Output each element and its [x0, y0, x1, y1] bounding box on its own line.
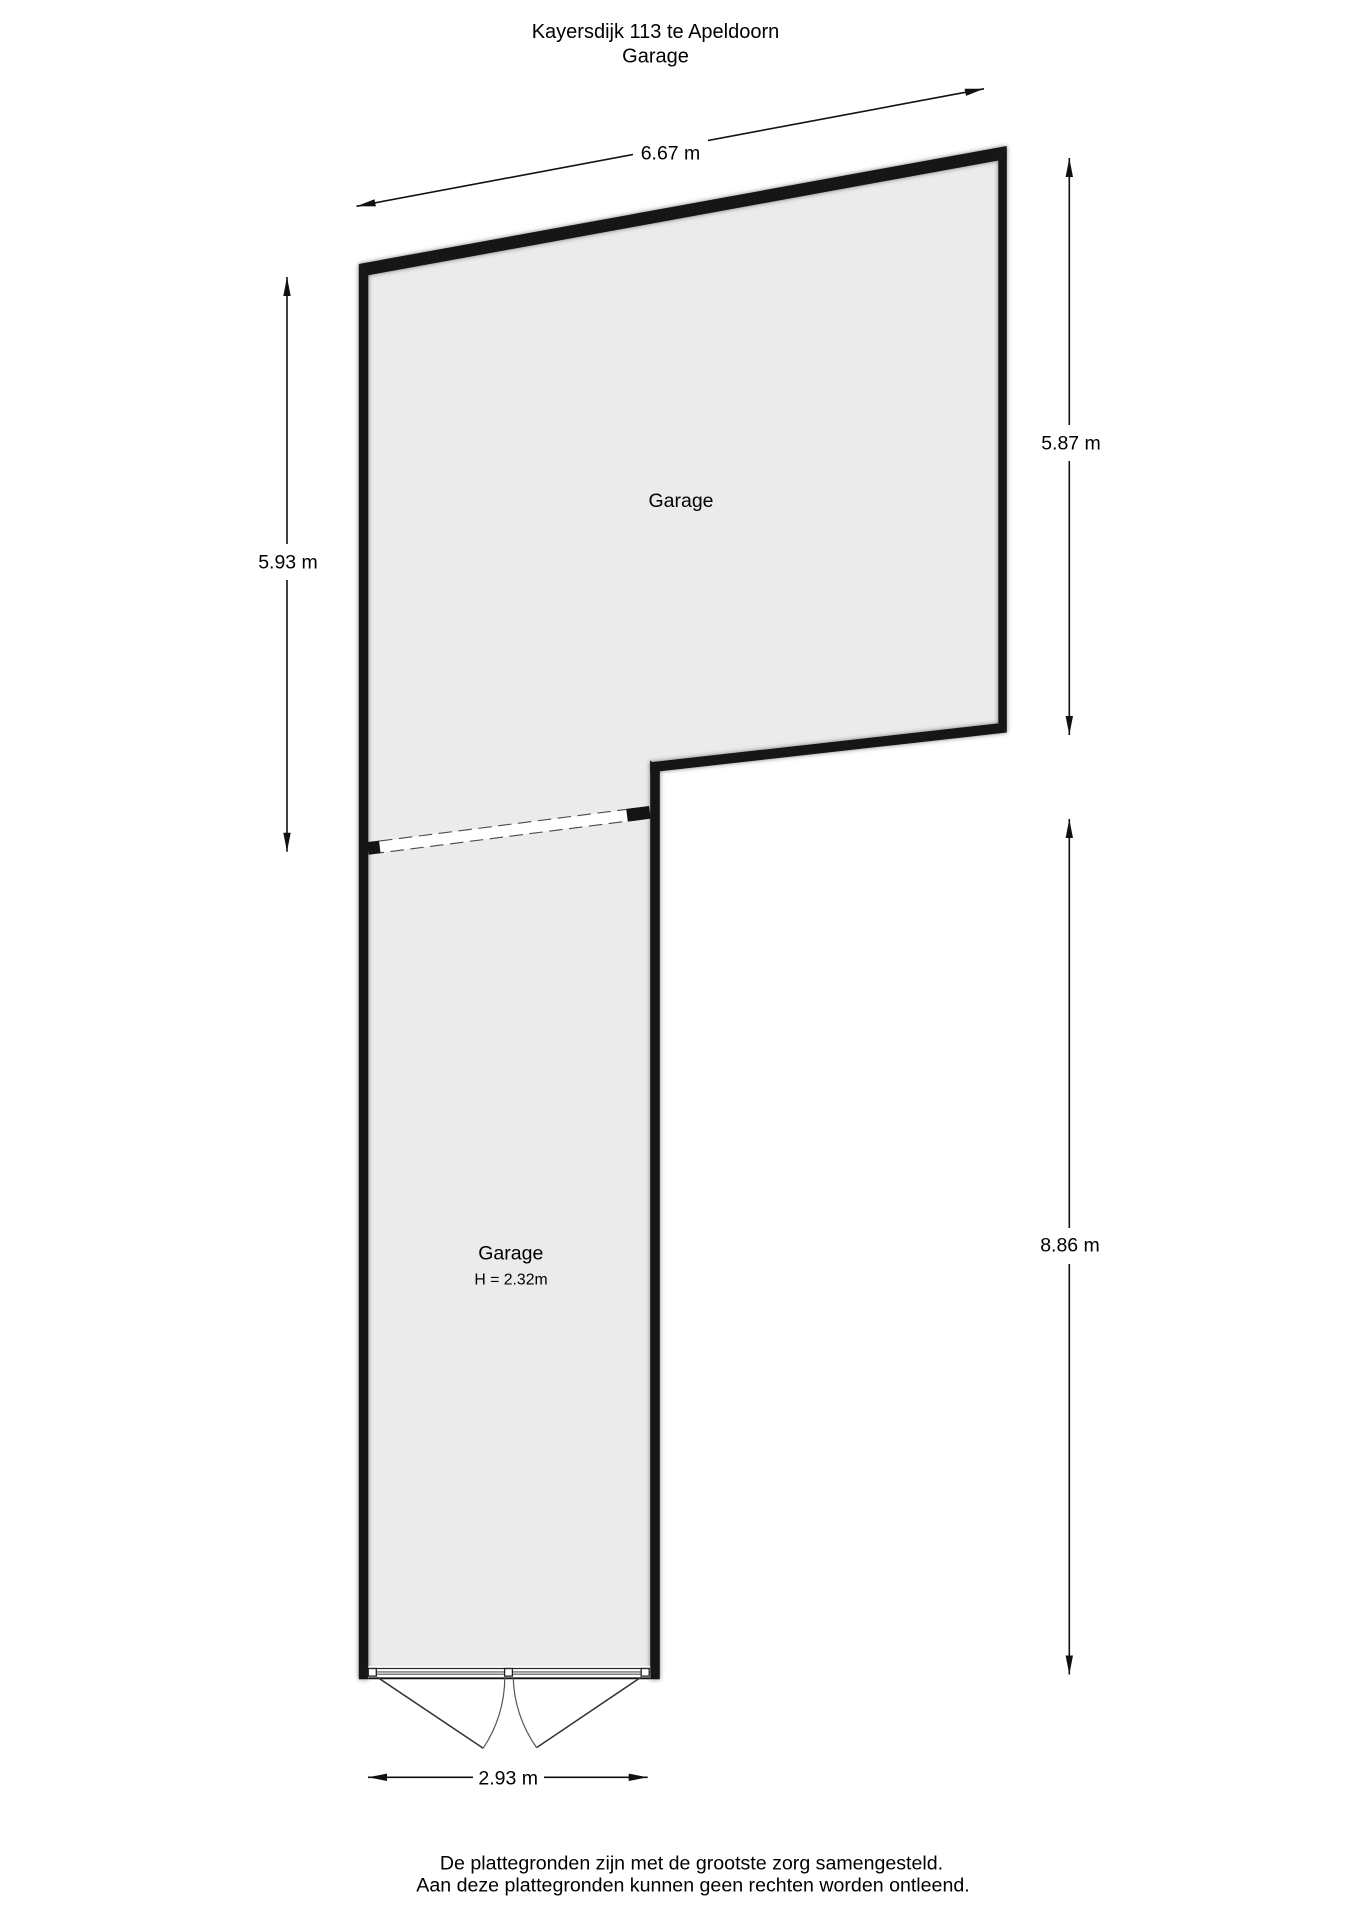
- svg-text:Garage: Garage: [648, 490, 713, 512]
- svg-text:2.93 m: 2.93 m: [478, 1767, 538, 1789]
- svg-text:6.67 m: 6.67 m: [641, 143, 701, 165]
- svg-text:De plattegronden zijn met de g: De plattegronden zijn met de grootste zo…: [440, 1852, 943, 1874]
- svg-text:8.86 m: 8.86 m: [1040, 1234, 1100, 1256]
- svg-text:H = 2.32m: H = 2.32m: [474, 1272, 547, 1289]
- svg-text:Garage: Garage: [622, 45, 689, 67]
- svg-text:5.93 m: 5.93 m: [258, 552, 318, 574]
- svg-text:Garage: Garage: [478, 1243, 543, 1265]
- svg-text:Kayersdijk 113 te Apeldoorn: Kayersdijk 113 te Apeldoorn: [532, 21, 780, 43]
- svg-text:5.87 m: 5.87 m: [1041, 433, 1101, 455]
- svg-text:Aan deze plattegronden kunnen: Aan deze plattegronden kunnen geen recht…: [416, 1874, 969, 1896]
